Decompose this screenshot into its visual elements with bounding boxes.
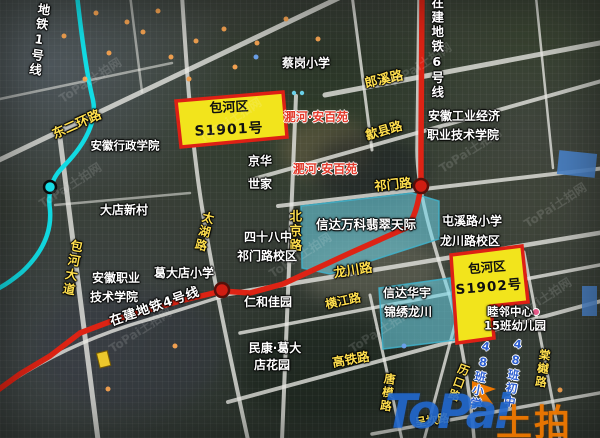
place-tunxi-primary-2: 龙川路校区 (440, 235, 500, 247)
estate-minkang-1: 民康·葛大 (249, 342, 302, 354)
estate-minkang-2: 店花园 (254, 359, 290, 371)
project-feicui-tianji: 信达万科翡翠天际 (316, 219, 416, 232)
map-canvas[interactable]: 地铁1号线 在建地铁6号线 在建地铁4号线 东二环路 郎溪路 歙县路 祁门路 北… (0, 0, 600, 438)
place-caigang-primary: 蔡岗小学 (282, 57, 330, 69)
place-vocational-2: 技术学院 (90, 291, 138, 303)
place-dadian-village: 大店新村 (100, 204, 148, 216)
watermark-brand: 土拍网 (496, 394, 600, 438)
place-tunxi-primary-1: 屯溪路小学 (442, 215, 502, 227)
parcel-s1902-district: 包河区 (468, 260, 506, 276)
place-gedadian-primary: 葛大店小学 (154, 267, 214, 279)
place-admin-college: 安徽行政学院 (91, 140, 160, 152)
estate-feihe-anbaiyuan-south: 淝河·安百苑 (293, 163, 358, 175)
estate-feihe-anbaiyuan-north: 淝河·安百苑 (284, 111, 349, 123)
place-vocational-1: 安徽职业 (92, 272, 140, 284)
watermark-logo-latin: ToPai (385, 385, 508, 438)
project-xinda-huayu: 信达华宇 (383, 287, 431, 299)
place-no48-school-1: 四十八中 (244, 231, 292, 243)
place-industry-economy-1: 安徽工业经济 (428, 110, 500, 122)
estate-jinghua-1: 京华 (248, 155, 272, 167)
estate-renhe-jiayuan: 仁和佳园 (244, 296, 292, 308)
estate-jinghua-2: 世家 (248, 178, 272, 190)
